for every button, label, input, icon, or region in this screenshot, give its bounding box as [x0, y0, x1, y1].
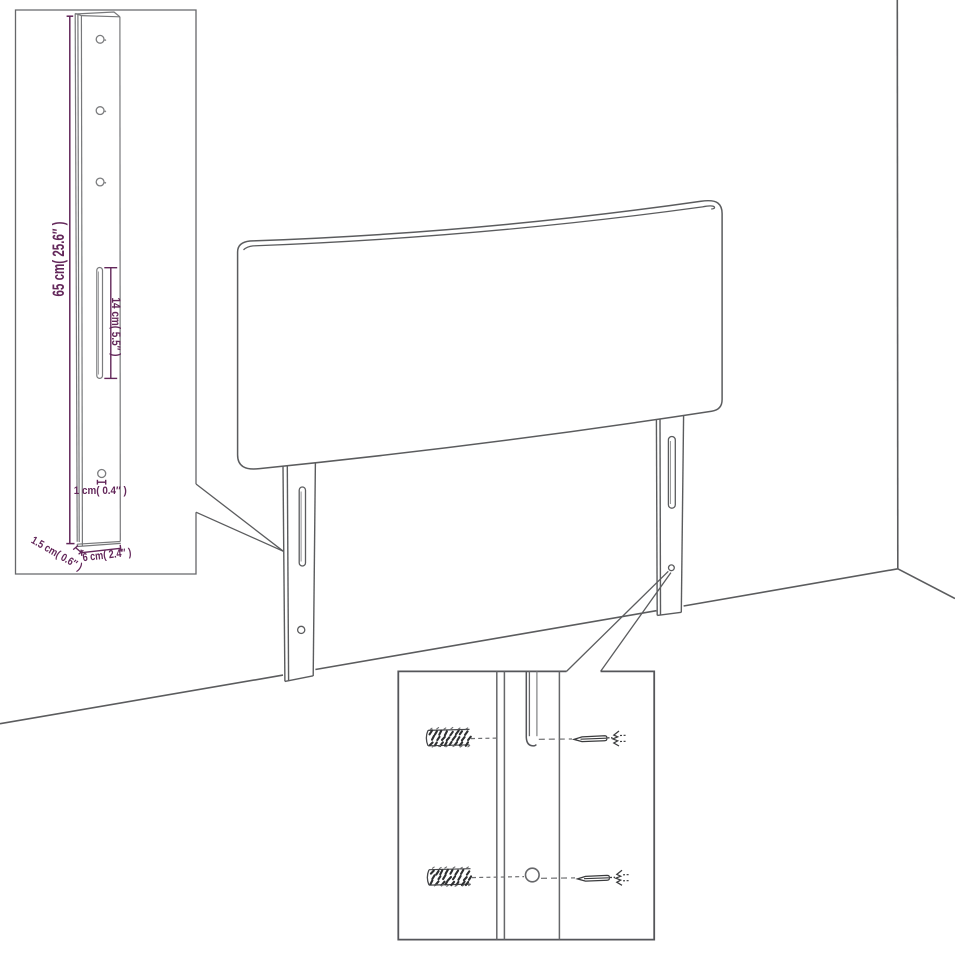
svg-text:14 cm( 5.5″ ): 14 cm( 5.5″ ) [109, 298, 122, 357]
svg-text:1 cm( 0.4″ ): 1 cm( 0.4″ ) [74, 485, 127, 497]
svg-text:65 cm( 25.6″ ): 65 cm( 25.6″ ) [49, 222, 68, 297]
